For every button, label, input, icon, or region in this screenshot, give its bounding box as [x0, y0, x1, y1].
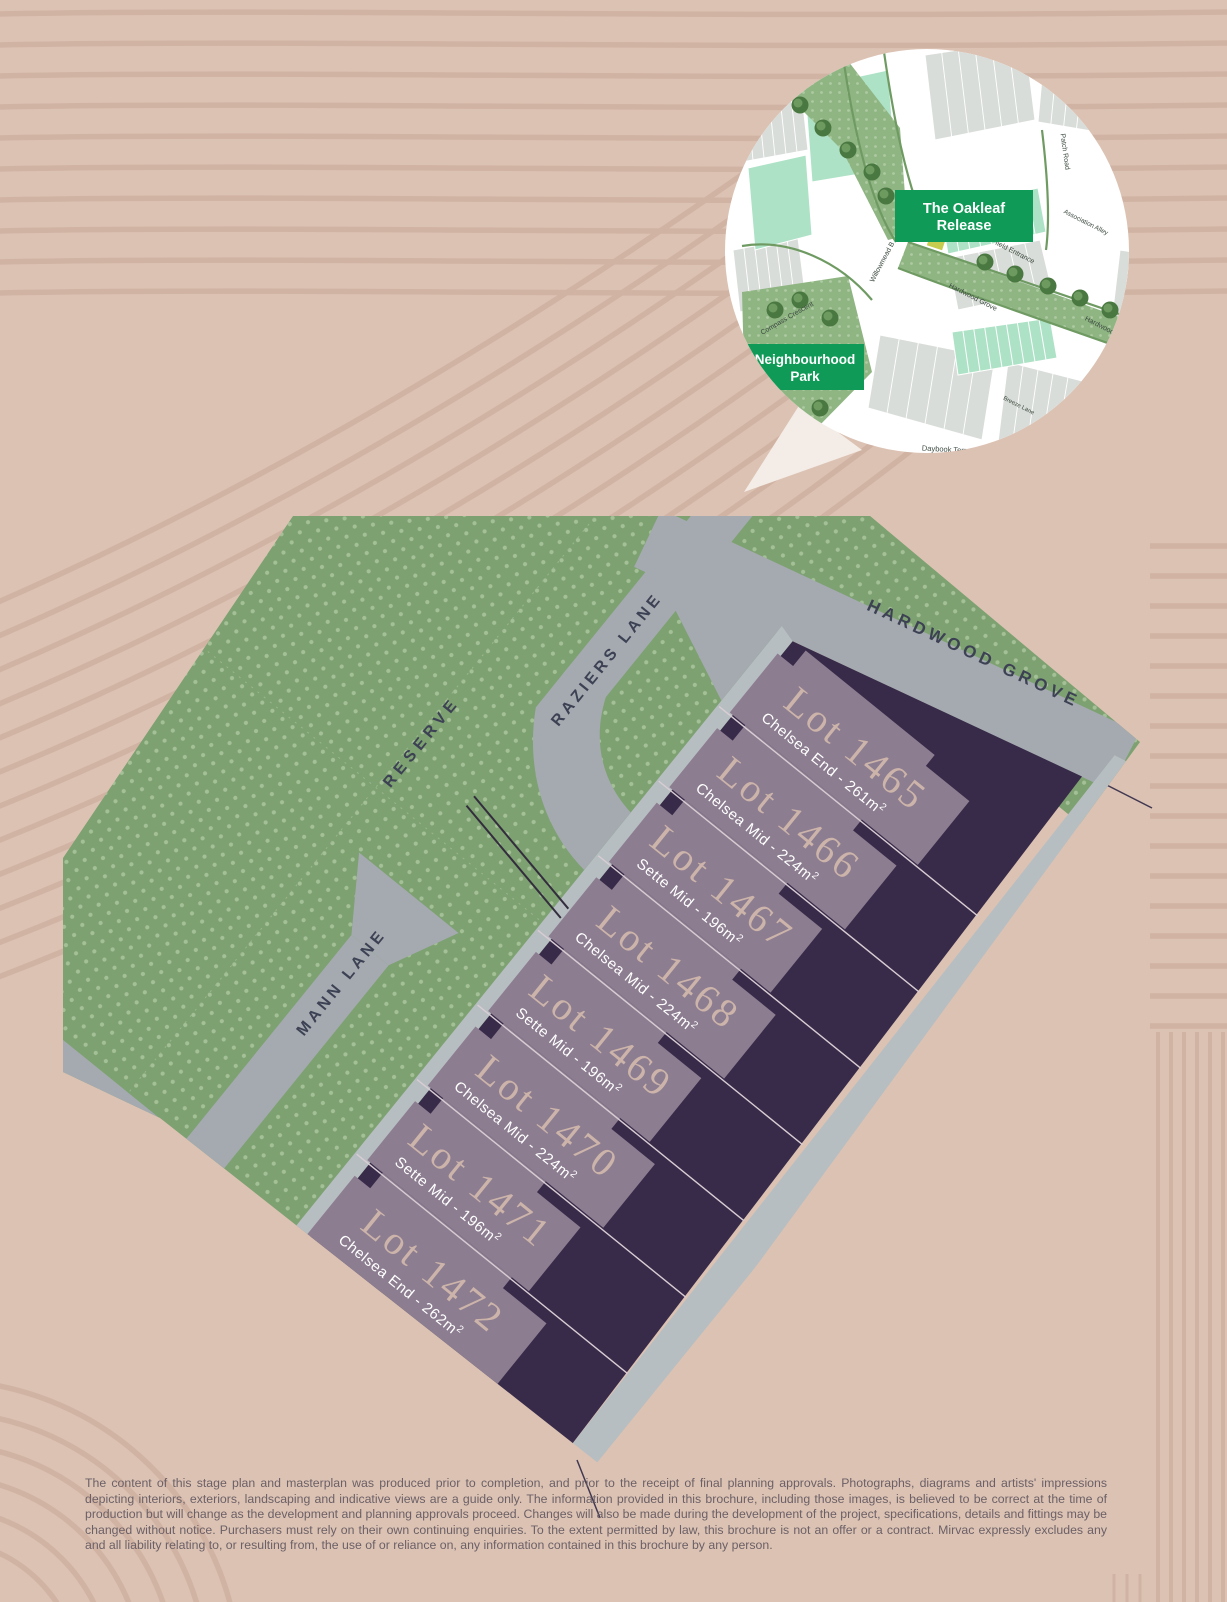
disclaimer-text: The content of this stage plan and maste… [85, 1476, 1107, 1554]
callout-box-label: The Oakleaf [923, 201, 1005, 217]
stage-plan-page: Lot 1465Chelsea End - 261m2Lot 1466Chels… [0, 0, 1227, 1602]
callout-box-label: Park [790, 369, 820, 384]
callout-box-label: Neighbourhood [755, 352, 855, 367]
future-release-block [748, 155, 812, 250]
masterplan-scene: Lot 1465Chelsea End - 261m2Lot 1466Chels… [0, 0, 1227, 1602]
callout-box-label: Release [937, 218, 992, 234]
